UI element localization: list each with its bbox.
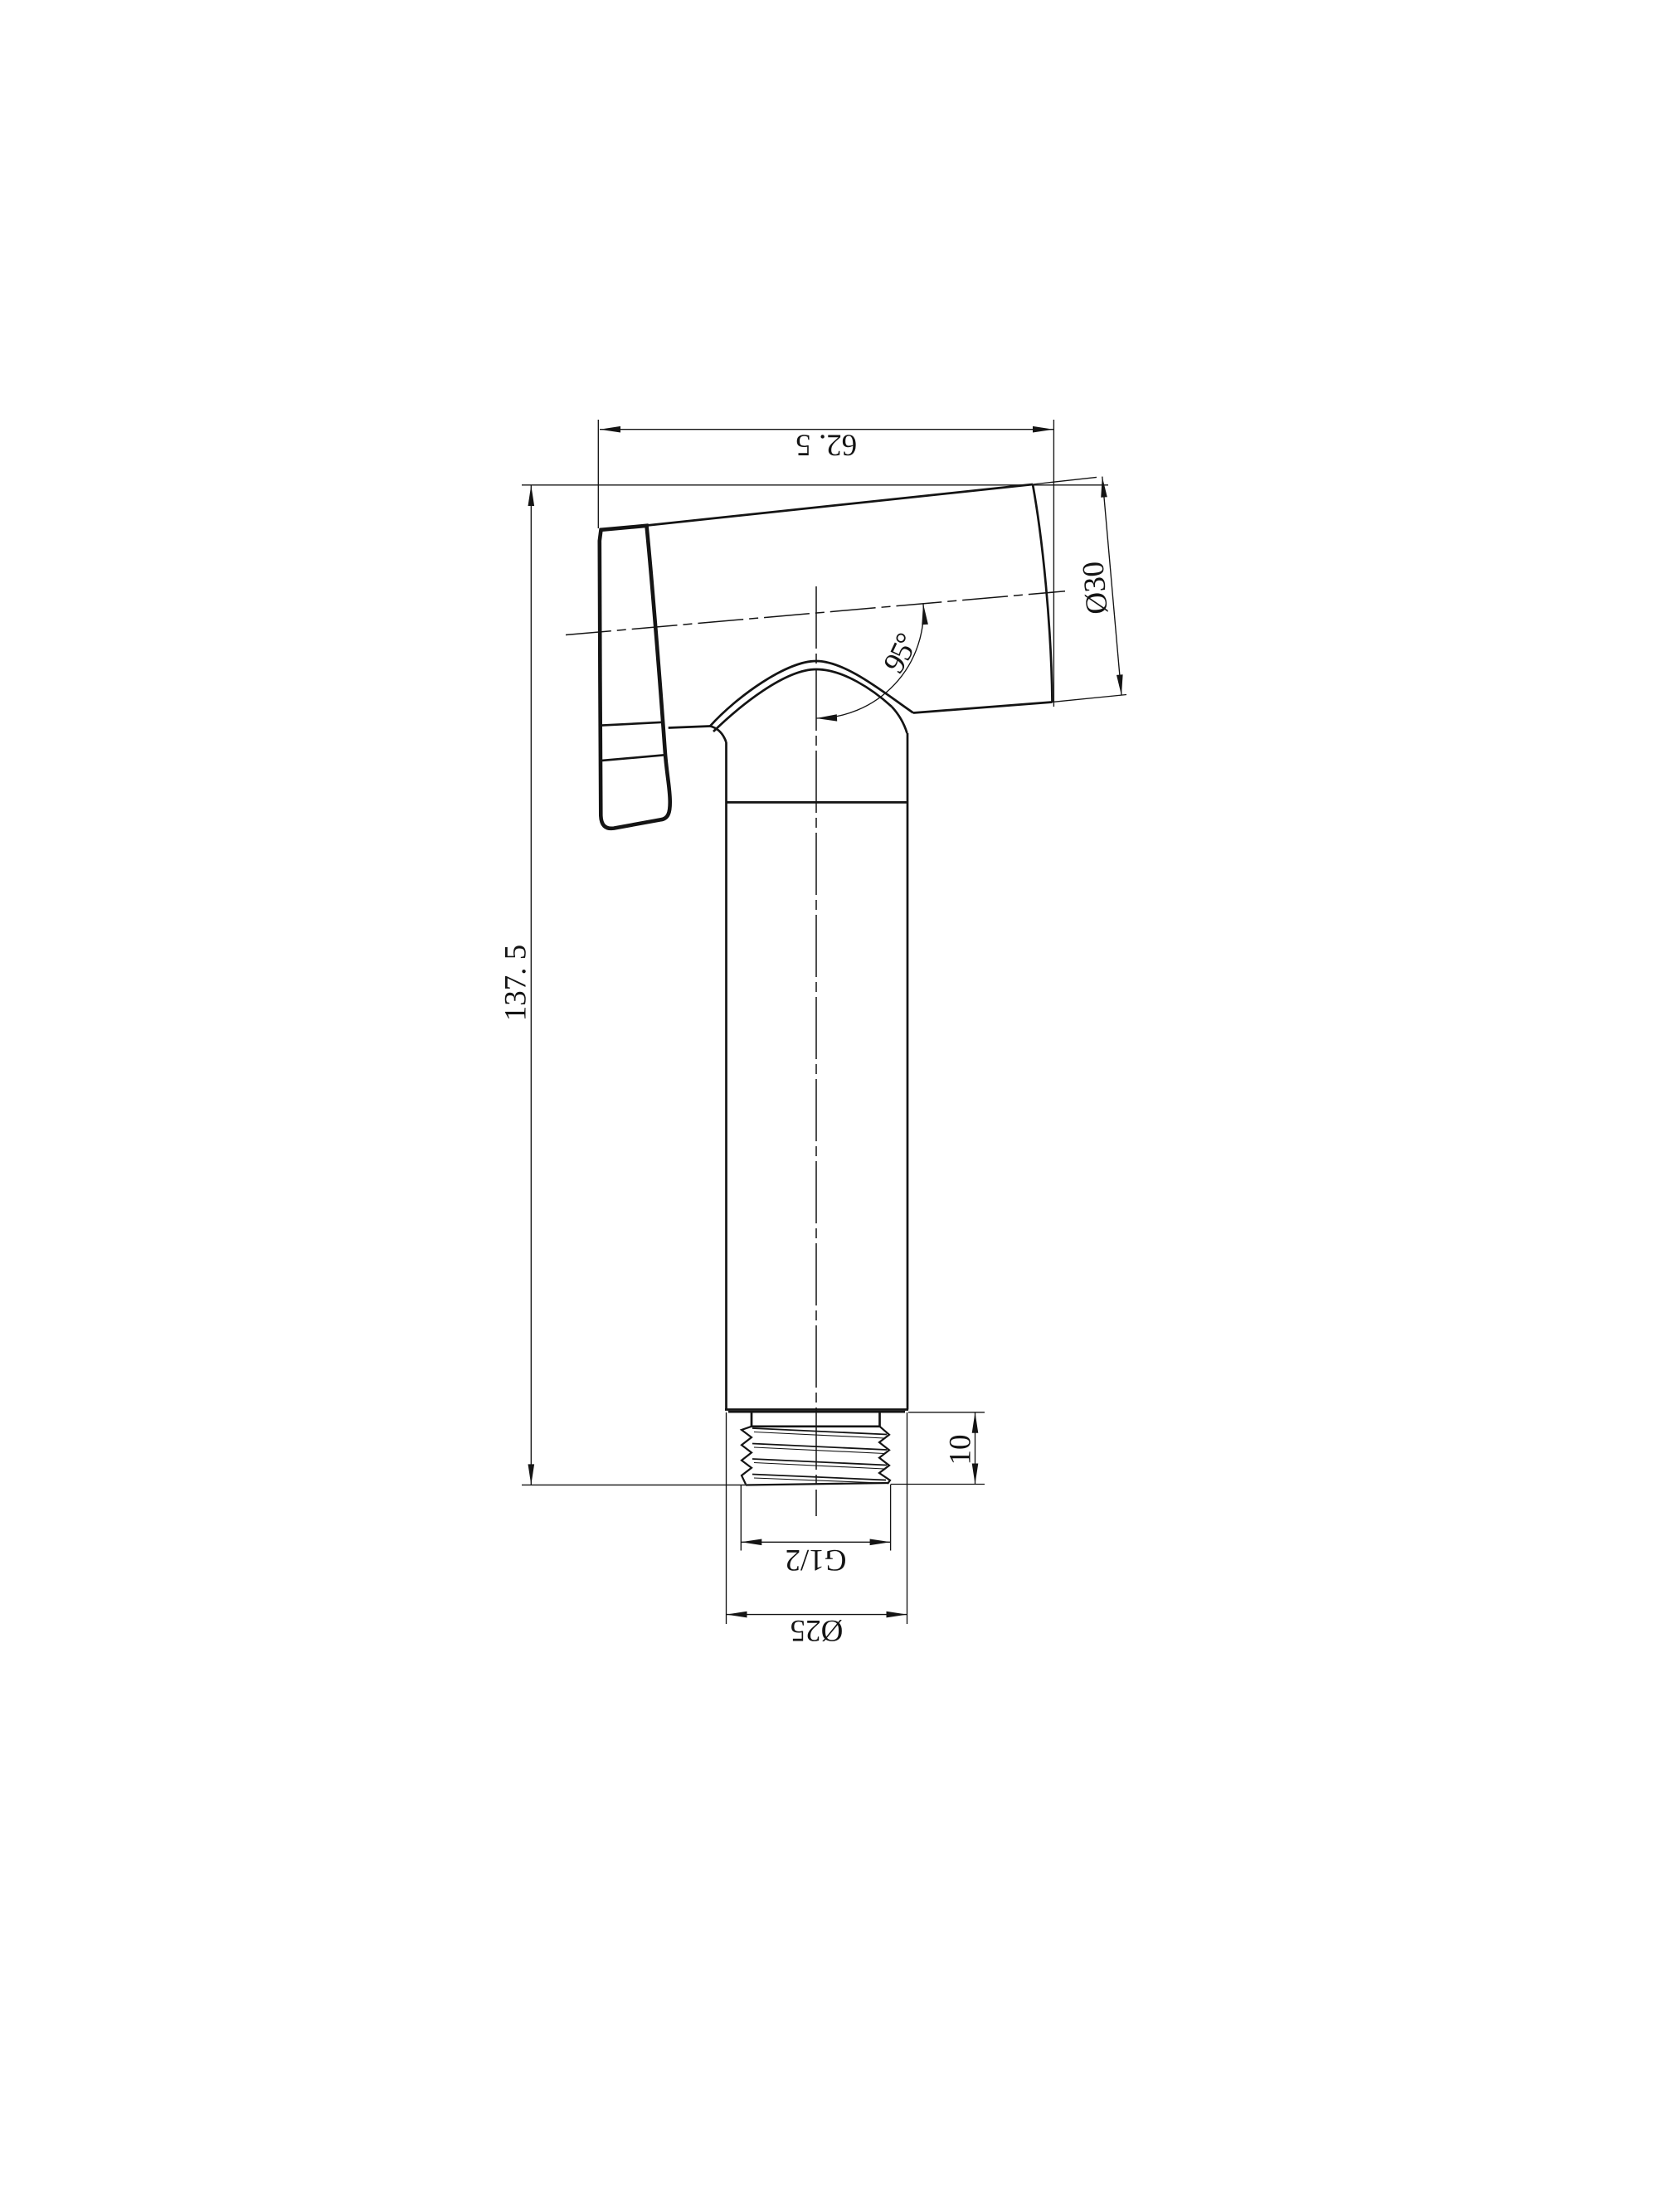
svg-text:62. 5: 62. 5 <box>795 428 857 462</box>
svg-text:137. 5: 137. 5 <box>499 945 533 1022</box>
svg-text:G1/2: G1/2 <box>786 1543 847 1577</box>
svg-text:Ø30: Ø30 <box>1076 560 1114 615</box>
svg-text:10: 10 <box>944 1435 978 1466</box>
svg-text:Ø25: Ø25 <box>791 1613 844 1647</box>
